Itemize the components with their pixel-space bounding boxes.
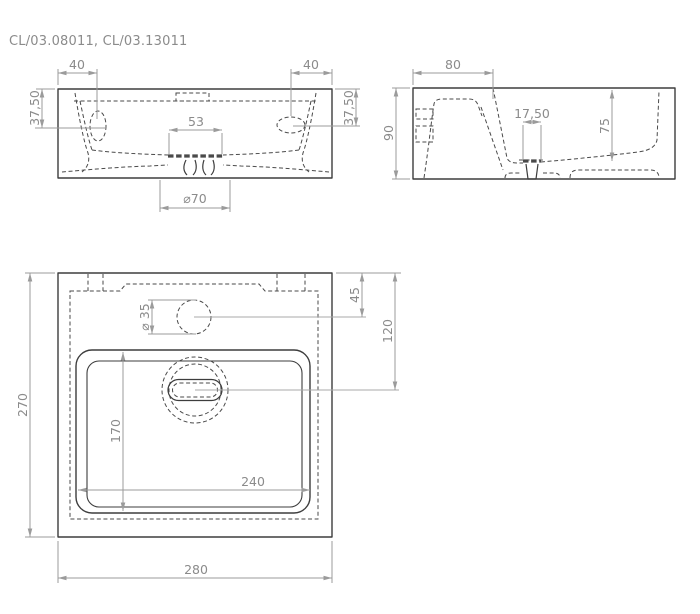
plan-outline	[58, 273, 332, 537]
dim-tap-hole-offset: 45	[347, 287, 362, 303]
dim-basin-inner-depth: 170	[108, 419, 123, 443]
dim-overall-depth: 270	[15, 393, 30, 417]
front-right-keyhole-slot	[277, 117, 305, 133]
front-trap-line	[184, 160, 187, 175]
dim-basin-inner-height: 75	[597, 118, 612, 134]
dim-waste-recess-diameter: ⌀70	[183, 191, 206, 206]
side-dimensions: 80 90 17,50 75	[381, 57, 612, 179]
dim-slot-drop-left: 37,50	[27, 90, 42, 126]
front-dimensions: 40 40 37,50 37,50 53 ⌀70	[27, 57, 360, 212]
plan-right-slot-hidden	[277, 274, 305, 291]
front-view: 40 40 37,50 37,50 53 ⌀70	[27, 57, 360, 212]
dim-tap-hole-diameter: ⌀ 35	[137, 303, 152, 330]
side-waste-pipe	[526, 164, 538, 179]
side-recess-left-hidden	[505, 173, 521, 178]
front-left-wall-hidden	[75, 93, 89, 172]
front-recess-right-hidden	[223, 165, 329, 172]
front-left-keyhole-slot	[90, 111, 106, 141]
front-trap-line	[193, 160, 196, 175]
side-recess-right-hidden	[570, 170, 659, 178]
front-basin-floor-right-hidden	[223, 150, 299, 155]
drawing-title: CL/03.08011, CL/03.13011	[9, 34, 188, 49]
front-trap-line	[203, 160, 206, 175]
plan-left-slot-hidden	[88, 274, 103, 291]
side-view: 80 90 17,50 75	[381, 57, 675, 179]
dim-waste-center-offset: 120	[380, 319, 395, 343]
dim-slot-offset-left: 40	[69, 57, 85, 72]
plan-underside-contour-hidden	[70, 284, 318, 519]
dim-waste-width: 17,50	[514, 106, 550, 121]
front-right-wall-hidden	[302, 93, 316, 172]
plan-view: 270 280 45 120 ⌀ 35 170 240	[15, 273, 401, 583]
front-tap-hole-hidden	[176, 93, 209, 101]
dim-slot-offset-right: 40	[303, 57, 319, 72]
side-front-slope-hidden	[493, 88, 523, 163]
side-outline	[413, 88, 675, 179]
dim-basin-inner-width: 240	[241, 474, 265, 489]
drawing-sheet: CL/03.08011, CL/03.13011 40 40	[0, 0, 700, 614]
dim-overall-height: 90	[381, 125, 396, 141]
dim-waste-slot-width: 53	[188, 114, 204, 129]
technical-drawing: CL/03.08011, CL/03.13011 40 40	[0, 0, 700, 614]
side-recess-left-hidden	[543, 173, 560, 178]
dim-overall-width: 280	[184, 562, 208, 577]
side-inner-slope-hidden	[481, 107, 503, 170]
front-basin-floor-left-hidden	[92, 150, 168, 155]
side-bracket-hidden	[416, 109, 433, 119]
front-trap-line	[211, 160, 214, 175]
front-left-wall-inner-hidden	[80, 101, 92, 150]
front-recess-left-hidden	[62, 165, 168, 172]
dim-slot-drop-right: 37,50	[341, 90, 356, 126]
dim-tap-deck-depth: 80	[445, 57, 461, 72]
